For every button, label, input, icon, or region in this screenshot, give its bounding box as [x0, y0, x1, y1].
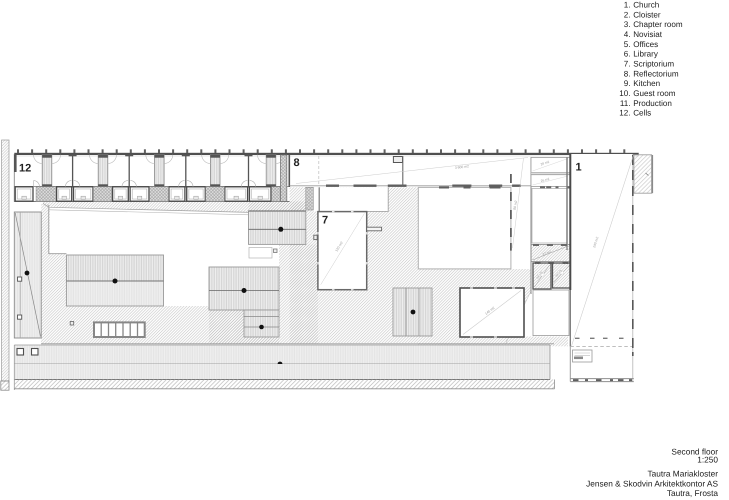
svg-text:Cloister: Cloister — [633, 10, 661, 19]
svg-text:5.: 5. — [624, 40, 631, 49]
svg-text:9.: 9. — [624, 79, 631, 88]
svg-text:Guest room: Guest room — [633, 89, 676, 98]
svg-text:6.: 6. — [624, 50, 631, 59]
svg-text:12.: 12. — [619, 109, 630, 118]
svg-text:4.: 4. — [624, 30, 631, 39]
svg-text:Production: Production — [633, 99, 672, 108]
svg-text:Chapter room: Chapter room — [633, 20, 683, 29]
svg-text:10.: 10. — [619, 89, 630, 98]
svg-text:7: 7 — [322, 215, 328, 227]
svg-text:7.: 7. — [624, 60, 631, 69]
svg-text:Jensen & Skodvin Arkitektkonto: Jensen & Skodvin Arkitektkontor AS — [586, 479, 718, 489]
svg-text:3.: 3. — [624, 20, 631, 29]
svg-text:Tautra Mariakloster: Tautra Mariakloster — [647, 469, 718, 479]
svg-text:Reflectorium: Reflectorium — [633, 69, 679, 78]
svg-text:8.: 8. — [624, 69, 631, 78]
svg-text:1:250: 1:250 — [697, 455, 718, 465]
svg-text:Library: Library — [633, 50, 659, 59]
svg-text:1.: 1. — [624, 1, 631, 10]
svg-text:Kitchen: Kitchen — [633, 79, 660, 88]
svg-text:8: 8 — [294, 157, 300, 169]
svg-text:Novisiat: Novisiat — [633, 30, 663, 39]
svg-text:Offices: Offices — [633, 40, 658, 49]
svg-text:12: 12 — [19, 163, 31, 175]
svg-text:Scriptorium: Scriptorium — [633, 60, 674, 69]
svg-text:Tautra, Frosta: Tautra, Frosta — [667, 488, 719, 498]
svg-text:1: 1 — [576, 162, 582, 174]
svg-text:2.: 2. — [624, 10, 631, 19]
svg-text:Cells: Cells — [633, 109, 651, 118]
svg-text:11.: 11. — [620, 99, 631, 108]
svg-text:Church: Church — [633, 1, 659, 10]
